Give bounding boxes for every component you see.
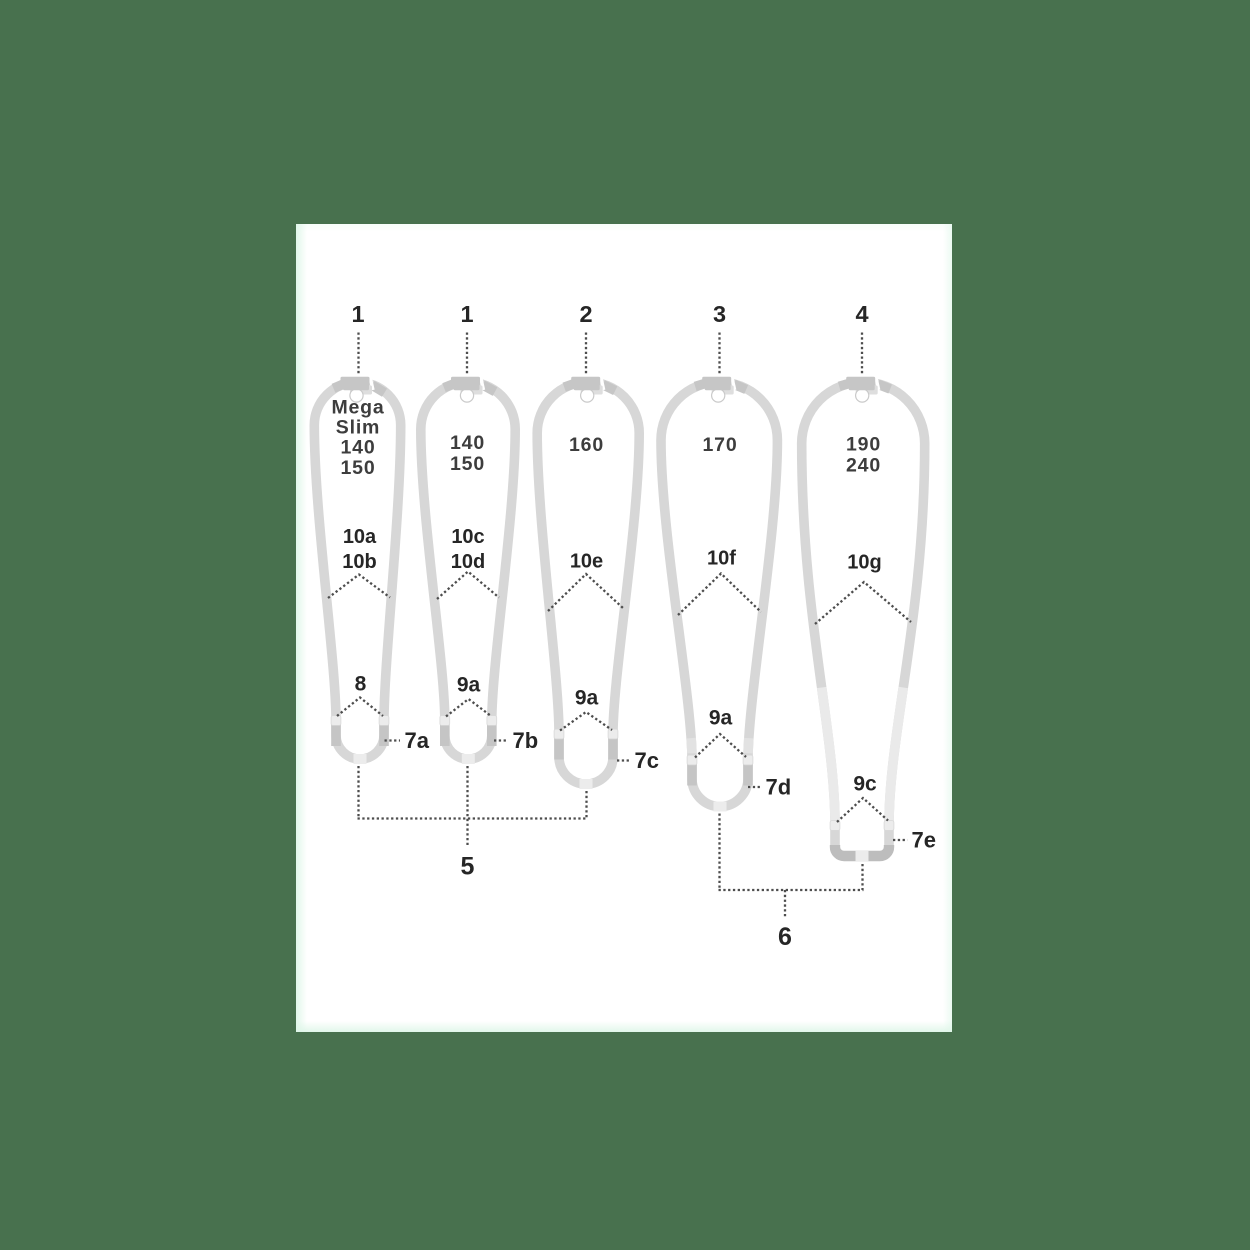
svg-text:170: 170 — [703, 434, 738, 456]
svg-text:9c: 9c — [853, 773, 877, 796]
svg-text:1: 1 — [351, 301, 364, 327]
svg-text:140: 140 — [450, 432, 485, 454]
svg-text:150: 150 — [341, 457, 376, 479]
svg-text:150: 150 — [450, 453, 485, 475]
svg-text:140: 140 — [341, 437, 376, 459]
svg-text:10e: 10e — [570, 551, 603, 573]
svg-text:9a: 9a — [575, 687, 599, 710]
svg-text:10a: 10a — [343, 526, 377, 548]
svg-text:1: 1 — [460, 301, 473, 327]
svg-text:9a: 9a — [457, 674, 481, 697]
svg-text:10b: 10b — [342, 551, 376, 573]
svg-text:Mega: Mega — [331, 396, 384, 418]
svg-text:7e: 7e — [912, 828, 936, 853]
svg-text:Slim: Slim — [336, 417, 380, 439]
svg-text:10c: 10c — [451, 526, 484, 548]
svg-text:7d: 7d — [766, 775, 792, 800]
svg-text:5: 5 — [461, 853, 475, 881]
svg-text:7c: 7c — [635, 748, 659, 773]
svg-text:2: 2 — [579, 301, 592, 327]
svg-text:8: 8 — [355, 673, 367, 696]
svg-text:190: 190 — [846, 433, 881, 455]
svg-text:10g: 10g — [847, 552, 881, 574]
svg-text:7b: 7b — [513, 728, 539, 753]
svg-text:7a: 7a — [405, 728, 430, 753]
svg-text:160: 160 — [569, 434, 604, 456]
svg-text:6: 6 — [778, 923, 792, 951]
svg-text:10d: 10d — [451, 551, 485, 573]
svg-text:4: 4 — [855, 301, 868, 327]
svg-text:3: 3 — [713, 301, 726, 327]
svg-text:10f: 10f — [707, 548, 736, 570]
svg-text:240: 240 — [846, 454, 881, 476]
svg-text:9a: 9a — [709, 707, 733, 730]
